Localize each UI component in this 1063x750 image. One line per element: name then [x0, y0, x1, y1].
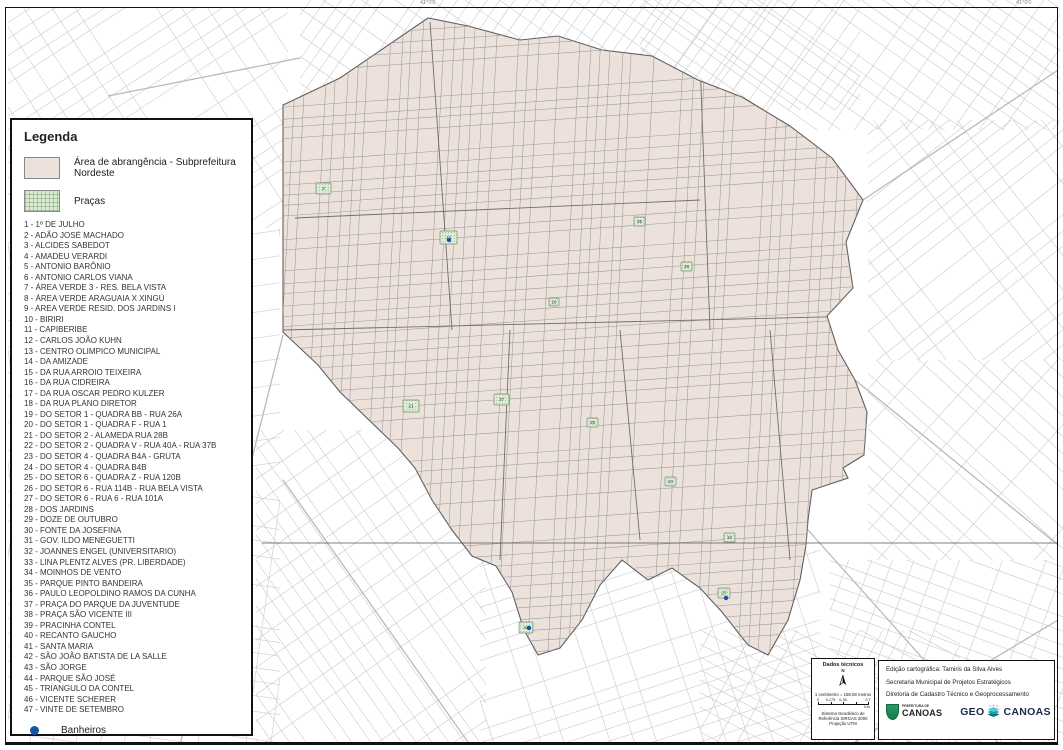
legend-place-item: 15 - DA RUA ARROIO TEIXEIRA — [24, 368, 239, 379]
banheiros-dot-icon — [30, 726, 39, 735]
praca-number-label: 35 — [637, 219, 643, 224]
legend-place-item: 43 - SÃO JORGE — [24, 663, 239, 674]
legend-place-item: 5 - ANTONIO BARÔNIO — [24, 262, 239, 273]
praca-number-label: 21 — [408, 404, 414, 409]
legend-panel: Legenda Área de abrangência - Subprefeit… — [10, 118, 253, 736]
praca-number-label: 37 — [499, 397, 505, 402]
legend-item-banheiros: Banheiros — [24, 725, 239, 736]
credit-diretoria: Diretoria de Cadastro Técnico e Geoproce… — [886, 691, 1047, 698]
legend-place-item: 38 - PRAÇA SÃO VICENTE III — [24, 610, 239, 621]
credit-secretaria: Secretaria Municipal de Projetos Estraté… — [886, 679, 1047, 686]
legend-place-item: 34 - MOINHOS DE VENTO — [24, 568, 239, 579]
legend-place-item: 32 - JOANNES ENGEL (UNIVERSITARIO) — [24, 547, 239, 558]
praca-number-label: 27 — [721, 591, 727, 596]
area-swatch — [24, 157, 60, 179]
legend-place-item: 13 - CENTRO OLIMPICO MUNICIPAL — [24, 347, 239, 358]
legend-place-item: 27 - DO SETOR 6 - RUA 6 - RUA 101A — [24, 494, 239, 505]
legend-place-item: 41 - SANTA MARIA — [24, 642, 239, 653]
legend-place-item: 47 - VINTE DE SETEMBRO — [24, 705, 239, 716]
pracas-swatch-label: Praças — [74, 196, 105, 207]
scale-bar: 0 0,175 0,35 0,7 Km — [818, 699, 868, 708]
legend-title: Legenda — [24, 129, 239, 144]
legend-place-item: 29 - DOZE DE OUTUBRO — [24, 515, 239, 526]
coat-of-arms-icon — [886, 704, 899, 720]
legend-place-item: 33 - LINA PLENTZ ALVES (PR. LIBERDADE) — [24, 558, 239, 569]
legend-place-item: 30 - FONTE DA JOSEFINA — [24, 526, 239, 537]
banheiro-dot — [447, 238, 451, 242]
geocanoas-logo: GEO CANOAS — [960, 705, 1051, 718]
datum-text: Sistema Geodésico de Referência SIRGAS 2… — [814, 711, 872, 727]
gis-layers-icon — [986, 705, 1001, 718]
legend-place-item: 14 - DA AMIZADE — [24, 357, 239, 368]
legend-place-item: 22 - DO SETOR 2 - QUADRA V - RUA 40A - R… — [24, 441, 239, 452]
credit-cartography: Edição cartográfica: Tamiris da Silva Al… — [886, 666, 1047, 673]
legend-place-item: 12 - CARLOS JOÃO KUHN — [24, 336, 239, 347]
technical-data-box: Dados técnicos N 1 centímetro = 158,08 m… — [811, 658, 875, 740]
legend-place-item: 10 - BIRIRI — [24, 315, 239, 326]
legend-place-item: 18 - DA RUA PLANO DIRETOR — [24, 399, 239, 410]
legend-place-item: 16 - DA RUA CIDREIRA — [24, 378, 239, 389]
grid-coordinate-label: 41°0'0 — [1016, 0, 1032, 6]
projection-line: Projeção UTM — [814, 721, 872, 726]
north-arrow-icon — [838, 675, 848, 686]
scale-unit-label: Km — [864, 705, 870, 709]
legend-place-item: 25 - DO SETOR 6 - QUADRA Z - RUA 120B — [24, 473, 239, 484]
prefeitura-canoas-logo: PREFEITURA DE CANOAS — [886, 704, 942, 720]
legend-place-item: 24 - DO SETOR 4 - QUADRA B4B — [24, 463, 239, 474]
legend-place-item: 2 - ADÃO JOSÉ MACHADO — [24, 231, 239, 242]
legend-place-item: 11 - CAPIBERIBE — [24, 325, 239, 336]
scale-ratio-text: 1 centímetro = 158,08 metros — [814, 692, 872, 697]
banheiros-label: Banheiros — [61, 725, 106, 736]
prefeitura-logo-bottom: CANOAS — [902, 709, 942, 718]
legend-place-item: 3 - ALCIDES SABEDOT — [24, 241, 239, 252]
legend-place-item: 9 - AREA VERDE RESID. DOS JARDINS I — [24, 304, 239, 315]
praca-number-label: 23 — [668, 479, 674, 484]
legend-place-item: 7 - ÁREA VERDE 3 - RES. BELA VISTA — [24, 283, 239, 294]
legend-place-item: 45 - TRIANGULO DA CONTEL — [24, 684, 239, 695]
legend-place-item: 37 - PRAÇA DO PARQUE DA JUVENTUDE — [24, 600, 239, 611]
legend-item-pracas: Praças — [24, 190, 239, 212]
praca-number-label: 16 — [551, 300, 557, 305]
legend-place-item: 20 - DO SETOR 1 - QUADRA F - RUA 1 — [24, 420, 239, 431]
banheiro-dot — [527, 626, 531, 630]
legend-place-item: 31 - GOV. ILDO MENEGUETTI — [24, 536, 239, 547]
legend-place-item: 28 - DOS JARDINS — [24, 505, 239, 516]
legend-place-item: 4 - AMADEU VERARDI — [24, 252, 239, 263]
banheiro-dot — [724, 596, 728, 600]
legend-place-item: 23 - DO SETOR 4 - QUADRA B4A - GRUTA — [24, 452, 239, 463]
legend-place-item: 36 - PAULO LEOPOLDINO RAMOS DA CUNHA — [24, 589, 239, 600]
legend-item-area: Área de abrangência - Subprefeitura Nord… — [24, 157, 239, 179]
map-page: 21335291621372523104427 41°0'0 41°0'0 Le… — [0, 0, 1063, 750]
legend-place-list: 1 - 1º DE JULHO2 - ADÃO JOSÉ MACHADO3 - … — [24, 220, 239, 716]
legend-place-item: 26 - DO SETOR 6 - RUA 114B - RUA BELA VI… — [24, 484, 239, 495]
legend-place-item: 8 - ÁREA VERDE ARAGUAIA X XINGÚ — [24, 294, 239, 305]
north-arrow: N — [814, 669, 872, 690]
pracas-swatch — [24, 190, 60, 212]
legend-place-item: 21 - DO SETOR 2 - ALAMEDA RUA 28B — [24, 431, 239, 442]
legend-place-item: 42 - SÃO JOÃO BATISTA DE LA SALLE — [24, 652, 239, 663]
legend-place-item: 46 - VICENTE SCHERER — [24, 695, 239, 706]
prefeitura-logo-text: PREFEITURA DE CANOAS — [902, 705, 942, 717]
logos-row: PREFEITURA DE CANOAS GEO CANOAS — [886, 704, 1047, 720]
legend-place-item: 39 - PRACINHA CONTEL — [24, 621, 239, 632]
district-area-polygon — [283, 18, 867, 655]
praca-number-label: 25 — [590, 420, 596, 425]
credits-box: Edição cartográfica: Tamiris da Silva Al… — [878, 660, 1055, 740]
geocanoas-logo-left: GEO — [960, 706, 984, 718]
north-label: N — [814, 669, 872, 674]
legend-place-item: 44 - PARQUE SÃO JOSÉ — [24, 674, 239, 685]
legend-place-item: 35 - PARQUE PINTO BANDEIRA — [24, 579, 239, 590]
legend-place-item: 6 - ANTONIO CARLOS VIANA — [24, 273, 239, 284]
legend-place-item: 1 - 1º DE JULHO — [24, 220, 239, 231]
legend-place-item: 40 - RECANTO GAUCHO — [24, 631, 239, 642]
legend-place-item: 17 - DA RUA OSCAR PEDRO KULZER — [24, 389, 239, 400]
legend-place-item: 19 - DO SETOR 1 - QUADRA BB - RUA 26A — [24, 410, 239, 421]
area-swatch-label: Área de abrangência - Subprefeitura Nord… — [74, 157, 239, 179]
grid-coordinate-label: 41°0'0 — [420, 0, 436, 6]
geocanoas-logo-right: CANOAS — [1003, 706, 1050, 718]
praca-number-label: 10 — [727, 535, 733, 540]
praca-number-label: 29 — [684, 264, 690, 269]
